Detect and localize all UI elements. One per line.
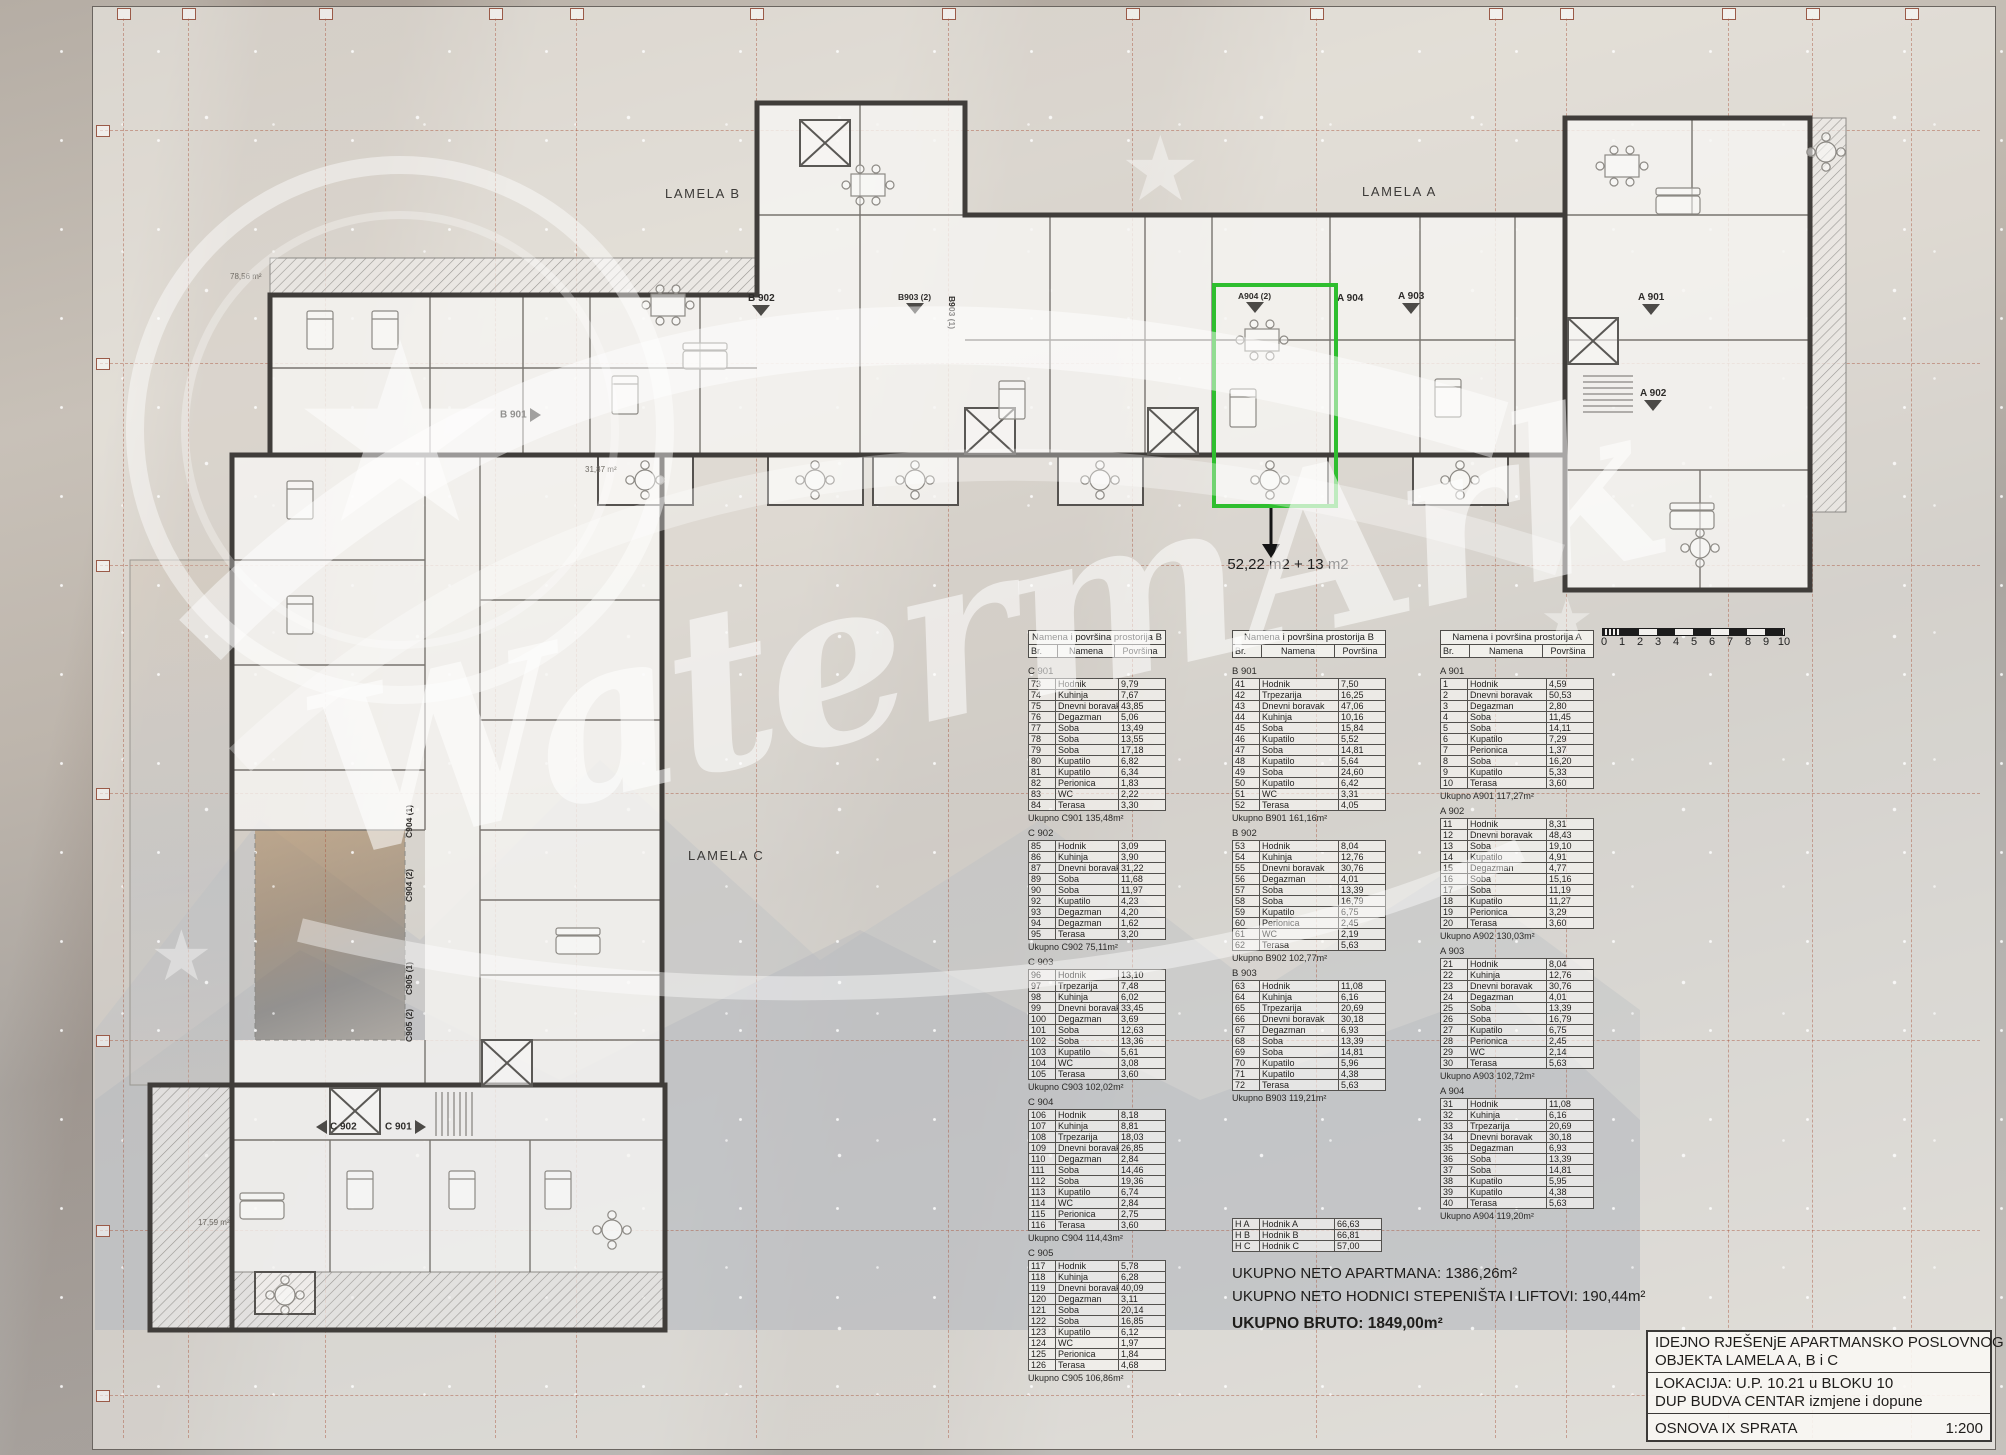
table-cell: 123 xyxy=(1029,1327,1056,1338)
grid-marker xyxy=(1310,8,1324,20)
table-cell: 50 xyxy=(1233,778,1260,789)
table-cell: WC xyxy=(1056,789,1119,800)
table-row: 118Kuhinja6,28 xyxy=(1029,1272,1166,1283)
table-cell: 60 xyxy=(1233,918,1260,929)
table-row: 10Terasa3,60 xyxy=(1441,778,1594,789)
table-row: 116Terasa3,60 xyxy=(1029,1220,1166,1231)
table-cell: 68 xyxy=(1233,1036,1260,1047)
table-cell: Degazman xyxy=(1056,918,1119,929)
table-cell: Perionica xyxy=(1056,1349,1119,1360)
table-cell: Hodnik xyxy=(1468,959,1547,970)
grid-marker xyxy=(319,8,333,20)
table-cell: Degazman xyxy=(1468,701,1547,712)
table-cell: 66,63 xyxy=(1335,1219,1382,1230)
table-cell: Soba xyxy=(1056,1025,1119,1036)
table-cell: Kuhinja xyxy=(1056,690,1119,701)
table-cell: 101 xyxy=(1029,1025,1056,1036)
table-row: 73Hodnik9,79 xyxy=(1029,679,1166,690)
table-cell: 124 xyxy=(1029,1338,1056,1349)
unit-arrow-icon xyxy=(530,408,541,422)
table-cell: Soba xyxy=(1468,723,1547,734)
table-cell: 11,97 xyxy=(1119,885,1166,896)
drawing-scale: 1:200 xyxy=(1945,1420,1983,1438)
table-row: 89Soba11,68 xyxy=(1029,874,1166,885)
table-row: 100Degazman3,69 xyxy=(1029,1014,1166,1025)
table-row: 115Perionica2,75 xyxy=(1029,1209,1166,1220)
table-row: 52Terasa4,05 xyxy=(1233,800,1386,811)
table-cell: Soba xyxy=(1468,885,1547,896)
table-cell: 63 xyxy=(1233,981,1260,992)
table-cell: 11,68 xyxy=(1119,874,1166,885)
table-cell: 19,36 xyxy=(1119,1176,1166,1187)
table-row: 25Soba13,39 xyxy=(1441,1003,1594,1014)
table-cell: 4,38 xyxy=(1547,1187,1594,1198)
table-cell: 103 xyxy=(1029,1047,1056,1058)
table-cell: Dnevni boravak xyxy=(1468,1132,1547,1143)
unit-label-text: C 902 xyxy=(330,1122,357,1133)
unit-group-total: Ukupno A903 102,72m² xyxy=(1440,1071,1594,1081)
table-cell: 104 xyxy=(1029,1058,1056,1069)
table-row: 22Kuhinja12,76 xyxy=(1441,970,1594,981)
groups-a: A 9011Hodnik4,592Dnevni boravak50,533Deg… xyxy=(1440,666,1594,1221)
table-cell: 11,08 xyxy=(1339,981,1386,992)
table-cell: 93 xyxy=(1029,907,1056,918)
table-cell: Kuhinja xyxy=(1056,1272,1119,1283)
unit-arrow-icon xyxy=(316,1120,327,1134)
table-cell: 11,08 xyxy=(1547,1099,1594,1110)
unit-group-title: C 902 xyxy=(1028,828,1166,839)
unit-arrow-icon xyxy=(1642,304,1660,315)
table-row: 69Soba14,81 xyxy=(1233,1047,1386,1058)
table-row: 21Hodnik8,04 xyxy=(1441,959,1594,970)
unit-group-title: B 901 xyxy=(1232,666,1386,677)
table-cell: Soba xyxy=(1056,1176,1119,1187)
unit-label-text: C904 (2) xyxy=(404,869,414,902)
table-row: 105Terasa3,60 xyxy=(1029,1069,1166,1080)
table-cell: 7,50 xyxy=(1339,679,1386,690)
grid-marker xyxy=(1126,8,1140,20)
table-cell: 87 xyxy=(1029,863,1056,874)
table-row: 32Kuhinja6,16 xyxy=(1441,1110,1594,1121)
table-cell: 3,20 xyxy=(1119,929,1166,940)
table-cell: Hodnik C xyxy=(1260,1241,1335,1252)
table-cell: 2,45 xyxy=(1339,918,1386,929)
table-header-columns: Br. Namena Površina xyxy=(1233,645,1385,657)
table-row: 38Kupatilo5,95 xyxy=(1441,1176,1594,1187)
table-cell: 14,81 xyxy=(1339,745,1386,756)
table-row: 9Kupatilo5,33 xyxy=(1441,767,1594,778)
grid-marker xyxy=(117,8,131,20)
table-cell: Trpezarija xyxy=(1056,1132,1119,1143)
table-cell: 28 xyxy=(1441,1036,1468,1047)
table-cell: Kupatilo xyxy=(1468,1176,1547,1187)
table-cell: Soba xyxy=(1468,756,1547,767)
table-row: 17Soba11,19 xyxy=(1441,885,1594,896)
table-cell: Kupatilo xyxy=(1056,1327,1119,1338)
table-cell: 19 xyxy=(1441,907,1468,918)
table-cell: 95 xyxy=(1029,929,1056,940)
table-cell: 2,84 xyxy=(1119,1154,1166,1165)
table-row: 119Dnevni boravak40,09 xyxy=(1029,1283,1166,1294)
table-row: 20Terasa3,60 xyxy=(1441,918,1594,929)
table-cell: 3,60 xyxy=(1119,1069,1166,1080)
table-cell: 10 xyxy=(1441,778,1468,789)
groups-c: C 90173Hodnik9,7974Kuhinja7,6775Dnevni b… xyxy=(1028,666,1166,1383)
table-cell: 115 xyxy=(1029,1209,1056,1220)
grid-marker xyxy=(1905,8,1919,20)
table-cell: Soba xyxy=(1056,1316,1119,1327)
table-row: 2Dnevni boravak50,53 xyxy=(1441,690,1594,701)
table-cell: 2,22 xyxy=(1119,789,1166,800)
col-povrsina: Površina xyxy=(1115,645,1165,657)
table-cell: 14 xyxy=(1441,852,1468,863)
table-row: 106Hodnik8,18 xyxy=(1029,1110,1166,1121)
table-cell: Degazman xyxy=(1056,712,1119,723)
grid-marker xyxy=(96,1035,110,1047)
table-cell: 5,63 xyxy=(1547,1198,1594,1209)
table-cell: Terasa xyxy=(1056,1220,1119,1231)
table-row: 43Dnevni boravak47,06 xyxy=(1233,701,1386,712)
table-cell: Terasa xyxy=(1260,940,1339,951)
table-cell: 102 xyxy=(1029,1036,1056,1047)
table-row: 47Soba14,81 xyxy=(1233,745,1386,756)
table-cell: 116 xyxy=(1029,1220,1056,1231)
table-row: 34Dnevni boravak30,18 xyxy=(1441,1132,1594,1143)
table-cell: 42 xyxy=(1233,690,1260,701)
unit-area-table: 21Hodnik8,0422Kuhinja12,7623Dnevni borav… xyxy=(1440,958,1594,1069)
unit-group-title: C 901 xyxy=(1028,666,1166,677)
table-cell: 122 xyxy=(1029,1316,1056,1327)
table-row: 117Hodnik5,78 xyxy=(1029,1261,1166,1272)
unit-group-total: Ukupno B902 102,77m² xyxy=(1232,953,1386,963)
label-unit-a901: A 901 xyxy=(1638,292,1664,315)
table-cell: 106 xyxy=(1029,1110,1056,1121)
title-block-location: LOKACIJA: U.P. 10.21 u BLOKU 10 DUP BUDV… xyxy=(1648,1373,1990,1414)
table-cell: Terasa xyxy=(1468,778,1547,789)
table-row: 13Soba19,10 xyxy=(1441,841,1594,852)
unit-label-text: B 901 xyxy=(500,410,527,421)
table-cell: 23 xyxy=(1441,981,1468,992)
table-cell: 114 xyxy=(1029,1198,1056,1209)
table-cell: 18,03 xyxy=(1119,1132,1166,1143)
table-cell: 16,25 xyxy=(1339,690,1386,701)
unit-area-table: 11Hodnik8,3112Dnevni boravak48,4313Soba1… xyxy=(1440,818,1594,929)
table-row: 98Kuhinja6,02 xyxy=(1029,992,1166,1003)
grid-marker xyxy=(1560,8,1574,20)
table-cell: 13,49 xyxy=(1119,723,1166,734)
table-cell: Perionica xyxy=(1468,1036,1547,1047)
scale-number: 6 xyxy=(1703,636,1721,648)
table-cell: Soba xyxy=(1056,1036,1119,1047)
table-cell: 34 xyxy=(1441,1132,1468,1143)
table-cell: Kupatilo xyxy=(1468,1025,1547,1036)
table-cell: Soba xyxy=(1056,745,1119,756)
table-cell: Degazman xyxy=(1056,1014,1119,1025)
table-cell: Dnevni boravak xyxy=(1260,701,1339,712)
col-namena: Namena xyxy=(1262,645,1335,657)
table-cell: 125 xyxy=(1029,1349,1056,1360)
table-row: 51WC3,31 xyxy=(1233,789,1386,800)
table-cell: Hodnik xyxy=(1260,981,1339,992)
table-cell: 111 xyxy=(1029,1165,1056,1176)
table-cell: 44 xyxy=(1233,712,1260,723)
table-row: 12Dnevni boravak48,43 xyxy=(1441,830,1594,841)
table-row: 27Kupatilo6,75 xyxy=(1441,1025,1594,1036)
table-row: 72Terasa5,63 xyxy=(1233,1080,1386,1091)
table-row: 5Soba14,11 xyxy=(1441,723,1594,734)
table-cell: Hodnik xyxy=(1468,819,1547,830)
table-row: 101Soba12,63 xyxy=(1029,1025,1166,1036)
table-row: 19Perionica3,29 xyxy=(1441,907,1594,918)
table-cell: Hodnik xyxy=(1468,679,1547,690)
table-cell: WC xyxy=(1056,1058,1119,1069)
table-cell: Perionica xyxy=(1056,1209,1119,1220)
table-cell: 96 xyxy=(1029,970,1056,981)
unit-area-table: 96Hodnik13,1097Trpezarija7,4898Kuhinja6,… xyxy=(1028,969,1166,1080)
table-cell: Soba xyxy=(1056,734,1119,745)
table-cell: Hodnik xyxy=(1056,970,1119,981)
table-column-a: Namena i površina prostorija A Br. Namen… xyxy=(1440,630,1594,1226)
table-cell: 2,84 xyxy=(1119,1198,1166,1209)
table-cell: 11 xyxy=(1441,819,1468,830)
title-block-project: IDEJNO RJEŠENjE APARTMANSKO POSLOVNOG OB… xyxy=(1648,1332,1990,1373)
grid-marker xyxy=(96,125,110,137)
table-cell: 11,27 xyxy=(1547,896,1594,907)
grid-marker xyxy=(96,1225,110,1237)
table-cell: 79 xyxy=(1029,745,1056,756)
table-cell: Dnevni boravak xyxy=(1056,1283,1119,1294)
table-cell: 90 xyxy=(1029,885,1056,896)
table-row: 37Soba14,81 xyxy=(1441,1165,1594,1176)
table-cell: 3,29 xyxy=(1547,907,1594,918)
table-row: 46Kupatilo5,52 xyxy=(1233,734,1386,745)
table-cell: Kupatilo xyxy=(1056,756,1119,767)
label-lamela-c: LAMELA C xyxy=(688,848,764,863)
table-cell: 89 xyxy=(1029,874,1056,885)
label-unit-b902: B 902 xyxy=(748,293,775,316)
label-unit-a903: A 903 xyxy=(1398,291,1424,314)
table-cell: 20,14 xyxy=(1119,1305,1166,1316)
table-cell: 48 xyxy=(1233,756,1260,767)
unit-label-text: B 902 xyxy=(748,293,775,304)
table-cell: 112 xyxy=(1029,1176,1056,1187)
table-cell: 59 xyxy=(1233,907,1260,918)
table-cell: 70 xyxy=(1233,1058,1260,1069)
unit-label-text: A 903 xyxy=(1398,291,1424,302)
table-cell: 6 xyxy=(1441,734,1468,745)
table-row: 126Terasa4,68 xyxy=(1029,1360,1166,1371)
table-row: 6Kupatilo7,29 xyxy=(1441,734,1594,745)
graphic-scale-bar: 012345678910 xyxy=(1602,628,1802,648)
table-row: 48Kupatilo5,64 xyxy=(1233,756,1386,767)
table-cell: Dnevni boravak xyxy=(1260,1014,1339,1025)
table-cell: Soba xyxy=(1056,723,1119,734)
table-cell: 6,75 xyxy=(1547,1025,1594,1036)
table-cell: 14,81 xyxy=(1339,1047,1386,1058)
table-header-a: Namena i površina prostorija A Br. Namen… xyxy=(1440,630,1594,658)
table-cell: Soba xyxy=(1468,1014,1547,1025)
table-cell: 2,80 xyxy=(1547,701,1594,712)
table-cell: Soba xyxy=(1260,767,1339,778)
table-cell: 26 xyxy=(1441,1014,1468,1025)
scale-number: 1 xyxy=(1613,636,1631,648)
table-cell: 17,18 xyxy=(1119,745,1166,756)
table-row: 67Degazman6,93 xyxy=(1233,1025,1386,1036)
unit-group-total: Ukupno B901 161,16m² xyxy=(1232,813,1386,823)
table-cell: 8 xyxy=(1441,756,1468,767)
table-cell: 6,16 xyxy=(1339,992,1386,1003)
label-unit-c904-2: C904 (2) xyxy=(404,869,414,902)
table-cell: 5,63 xyxy=(1547,1058,1594,1069)
highlighted-unit-box[interactable] xyxy=(1212,283,1338,508)
table-cell: 53 xyxy=(1233,841,1260,852)
table-cell: Terasa xyxy=(1468,1058,1547,1069)
table-cell: 45 xyxy=(1233,723,1260,734)
table-row: 78Soba13,55 xyxy=(1029,734,1166,745)
unit-group-title: A 901 xyxy=(1440,666,1594,677)
location-line2: DUP BUDVA CENTAR izmjene i dopune xyxy=(1655,1393,1983,1411)
table-cell: 6,42 xyxy=(1339,778,1386,789)
table-cell: 4,23 xyxy=(1119,896,1166,907)
scale-number: 8 xyxy=(1739,636,1757,648)
unit-arrow-icon xyxy=(415,1120,426,1134)
table-cell: 47 xyxy=(1233,745,1260,756)
table-cell: 56 xyxy=(1233,874,1260,885)
table-cell: 13,39 xyxy=(1547,1154,1594,1165)
table-cell: 43,85 xyxy=(1119,701,1166,712)
table-cell: 41 xyxy=(1233,679,1260,690)
table-cell: 13,39 xyxy=(1339,885,1386,896)
table-cell: 31 xyxy=(1441,1099,1468,1110)
corridor-summary-table: H AHodnik A66,63H BHodnik B66,81H CHodni… xyxy=(1232,1218,1382,1252)
table-row: 26Soba16,79 xyxy=(1441,1014,1594,1025)
unit-group-total: Ukupno C902 75,11m² xyxy=(1028,942,1166,952)
label-lamela-a: LAMELA A xyxy=(1362,184,1437,199)
table-cell: Kuhinja xyxy=(1468,970,1547,981)
table-row: 114WC2,84 xyxy=(1029,1198,1166,1209)
table-header-title: Namena i površina prostorija A xyxy=(1441,631,1593,645)
table-cell: 1,37 xyxy=(1547,745,1594,756)
table-cell: 14,11 xyxy=(1547,723,1594,734)
table-cell: Terasa xyxy=(1056,929,1119,940)
table-cell: Kupatilo xyxy=(1056,896,1119,907)
table-cell: Soba xyxy=(1056,1165,1119,1176)
table-cell: 29 xyxy=(1441,1047,1468,1058)
table-cell: Trpezarija xyxy=(1260,690,1339,701)
table-cell: Soba xyxy=(1260,896,1339,907)
table-cell: 33,45 xyxy=(1119,1003,1166,1014)
table-row: 76Degazman5,06 xyxy=(1029,712,1166,723)
scale-number: 9 xyxy=(1757,636,1775,648)
scale-number: 2 xyxy=(1631,636,1649,648)
table-row: 66Dnevni boravak30,18 xyxy=(1233,1014,1386,1025)
table-cell: 6,93 xyxy=(1547,1143,1594,1154)
table-cell: 1,62 xyxy=(1119,918,1166,929)
unit-group-title: C 903 xyxy=(1028,957,1166,968)
table-cell: Soba xyxy=(1468,874,1547,885)
label-unit-b903-2: B903 (2) xyxy=(898,292,931,314)
table-cell: 5,06 xyxy=(1119,712,1166,723)
table-cell: 83 xyxy=(1029,789,1056,800)
label-unit-c901: C 901 xyxy=(385,1120,426,1134)
grid-marker xyxy=(1722,8,1736,20)
table-cell: 71 xyxy=(1233,1069,1260,1080)
table-cell: 13,39 xyxy=(1339,1036,1386,1047)
table-cell: 51 xyxy=(1233,789,1260,800)
table-row: 53Hodnik8,04 xyxy=(1233,841,1386,852)
table-cell: Kuhinja xyxy=(1056,1121,1119,1132)
col-namena: Namena xyxy=(1058,645,1115,657)
table-cell: 7,29 xyxy=(1547,734,1594,745)
table-cell: 7,48 xyxy=(1119,981,1166,992)
table-row: 14Kupatilo4,91 xyxy=(1441,852,1594,863)
table-row: 24Degazman4,01 xyxy=(1441,992,1594,1003)
table-cell: Dnevni boravak xyxy=(1056,1003,1119,1014)
table-cell: 12,63 xyxy=(1119,1025,1166,1036)
table-cell: 17 xyxy=(1441,885,1468,896)
location-line1: LOKACIJA: U.P. 10.21 u BLOKU 10 xyxy=(1655,1375,1983,1393)
table-cell: 1 xyxy=(1441,679,1468,690)
table-cell: Soba xyxy=(1468,841,1547,852)
col-povrsina: Površina xyxy=(1335,645,1385,657)
table-cell: Degazman xyxy=(1260,874,1339,885)
table-row: 92Kupatilo4,23 xyxy=(1029,896,1166,907)
col-br: Br. xyxy=(1441,645,1470,657)
table-row: 1Hodnik4,59 xyxy=(1441,679,1594,690)
table-cell: Soba xyxy=(1260,1047,1339,1058)
grid-marker xyxy=(1489,8,1503,20)
table-cell: 4,01 xyxy=(1339,874,1386,885)
table-cell: 20 xyxy=(1441,918,1468,929)
table-row: 71Kupatilo4,38 xyxy=(1233,1069,1386,1080)
table-cell: 13,39 xyxy=(1547,1003,1594,1014)
table-cell: 6,28 xyxy=(1119,1272,1166,1283)
grid-marker xyxy=(96,788,110,800)
table-cell: 81 xyxy=(1029,767,1056,778)
unit-group-title: A 904 xyxy=(1440,1086,1594,1097)
table-cell: Hodnik xyxy=(1468,1099,1547,1110)
table-cell: 13 xyxy=(1441,841,1468,852)
grid-marker xyxy=(96,560,110,572)
unit-group-title: B 902 xyxy=(1232,828,1386,839)
area-text-3: 17,59 m² xyxy=(198,1218,230,1227)
table-row: 65Trpezarija20,69 xyxy=(1233,1003,1386,1014)
label-unit-a902: A 902 xyxy=(1640,388,1666,411)
table-cell: H A xyxy=(1233,1219,1260,1230)
table-row: 62Terasa5,63 xyxy=(1233,940,1386,951)
grid-marker xyxy=(489,8,503,20)
table-cell: 38 xyxy=(1441,1176,1468,1187)
table-cell: Hodnik xyxy=(1056,1110,1119,1121)
table-cell: 3,30 xyxy=(1119,800,1166,811)
table-cell: 13,36 xyxy=(1119,1036,1166,1047)
table-header-columns: Br. Namena Površina xyxy=(1029,645,1165,657)
label-unit-a904: A 904 xyxy=(1337,293,1363,304)
table-cell: Soba xyxy=(1260,745,1339,756)
table-cell: 6,82 xyxy=(1119,756,1166,767)
unit-area-table: 73Hodnik9,7974Kuhinja7,6775Dnevni borava… xyxy=(1028,678,1166,811)
groups-b: B 90141Hodnik7,5042Trpezarija16,2543Dnev… xyxy=(1232,666,1386,1103)
table-row: 54Kuhinja12,76 xyxy=(1233,852,1386,863)
project-title-line2: OBJEKTA LAMELA A, B i C xyxy=(1655,1352,1983,1370)
table-row: 124WC1,97 xyxy=(1029,1338,1166,1349)
table-cell: 5,33 xyxy=(1547,767,1594,778)
table-header-c: Namena i površina prostorija B Br. Namen… xyxy=(1028,630,1166,658)
unit-group-title: A 903 xyxy=(1440,946,1594,957)
table-cell: Kupatilo xyxy=(1056,767,1119,778)
table-cell: 5,63 xyxy=(1339,1080,1386,1091)
table-row: 93Degazman4,20 xyxy=(1029,907,1166,918)
